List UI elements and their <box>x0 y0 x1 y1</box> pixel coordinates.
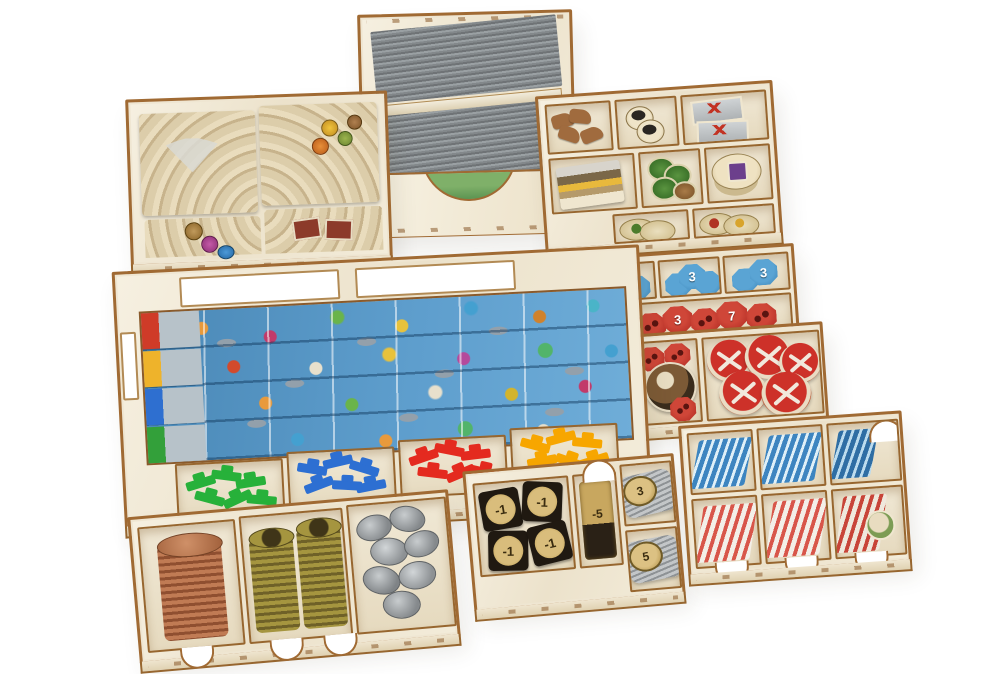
brass-coin-stack <box>249 536 301 633</box>
board-edge-yellow <box>143 348 203 387</box>
card-cutout <box>421 168 518 202</box>
tile-stack <box>144 216 261 258</box>
silver-coin <box>383 590 421 619</box>
wood-meeple <box>569 108 592 124</box>
resource-dot-blue <box>217 245 234 260</box>
coin-tray <box>127 489 461 665</box>
ship-meeple-green <box>194 490 225 506</box>
tile-stack <box>139 110 258 216</box>
coin-roll: 3 <box>619 467 676 520</box>
red-tile-stack <box>696 503 758 563</box>
ship-meeple-blue <box>349 460 380 477</box>
debt-stack-bin: -5 <box>572 471 624 568</box>
ship-meeple-orange <box>572 437 603 449</box>
blue-tile-stack <box>690 437 752 489</box>
board-edge-green <box>147 424 207 463</box>
handle-slot-left <box>120 332 140 401</box>
board-edge-blue <box>145 386 205 425</box>
tile-stack <box>264 206 383 254</box>
red-tile-stack <box>765 498 827 558</box>
tray-cutout <box>581 458 617 483</box>
resource-dot-purple <box>201 235 219 253</box>
purple-icon <box>727 161 748 182</box>
red-disc-tray <box>625 321 829 433</box>
debt-token: -1 <box>488 530 529 571</box>
ship-meeple-red <box>460 448 491 461</box>
red-tile-slot <box>831 484 908 559</box>
coin-roll-slot: 3 <box>619 460 676 526</box>
resource-dot-orange <box>312 138 330 156</box>
red-tile-slot <box>691 495 762 569</box>
resource-dot-green <box>337 131 353 147</box>
brown-token <box>672 180 697 202</box>
photo-stage: 1 3 3 7 3 7 <box>0 0 1000 666</box>
debt-token: -1 <box>526 519 574 567</box>
tile-fan-motif <box>166 137 219 173</box>
red-cross-icon <box>710 124 729 135</box>
debt-token: -1 <box>477 486 523 532</box>
resource-dot-brown <box>347 114 363 130</box>
board-edge-red <box>141 310 201 349</box>
debt-square-bin: -1 -1 -1 -1 <box>472 475 576 577</box>
blue-tile-stack <box>760 432 822 484</box>
brass-coin-stack <box>296 526 349 629</box>
brass-coin-bin <box>239 508 354 645</box>
debt-stack-value: -5 <box>591 506 603 521</box>
slot-cutout <box>868 419 902 443</box>
silver-coin-bin <box>346 496 457 634</box>
resource-dot-yellow <box>321 119 339 137</box>
blue-tile-slot <box>687 429 757 495</box>
tile-tray <box>125 90 393 267</box>
debt-token-tray: -1 -1 -1 -1 -5 3 5 <box>462 453 686 613</box>
debt-token-stack: -5 <box>579 480 618 560</box>
wood-meeple <box>579 124 605 145</box>
striped-tile-stack <box>556 160 625 210</box>
tile-slot-tray <box>678 410 912 577</box>
wood-meeple <box>557 124 582 144</box>
silver-coin <box>396 558 439 593</box>
ship-meeple-red <box>417 467 448 480</box>
resource-dot-brown <box>184 222 203 241</box>
blue-tile-slot <box>756 424 826 490</box>
tile-stack <box>258 102 379 206</box>
copper-coin-bin <box>137 519 246 653</box>
red-cross-icon <box>705 102 724 113</box>
topright-token-tray <box>535 80 783 252</box>
ship-meeple-blue <box>303 475 334 494</box>
blue-tile-slot <box>826 419 902 486</box>
debt-token: -1 <box>521 481 562 522</box>
red-tile-slot <box>761 490 832 564</box>
coin-roll-slot: 5 <box>625 526 682 592</box>
coin-roll: 5 <box>625 534 682 585</box>
red-card-motif <box>291 217 322 242</box>
silver-coin <box>370 537 408 566</box>
red-card-motif <box>324 219 353 241</box>
